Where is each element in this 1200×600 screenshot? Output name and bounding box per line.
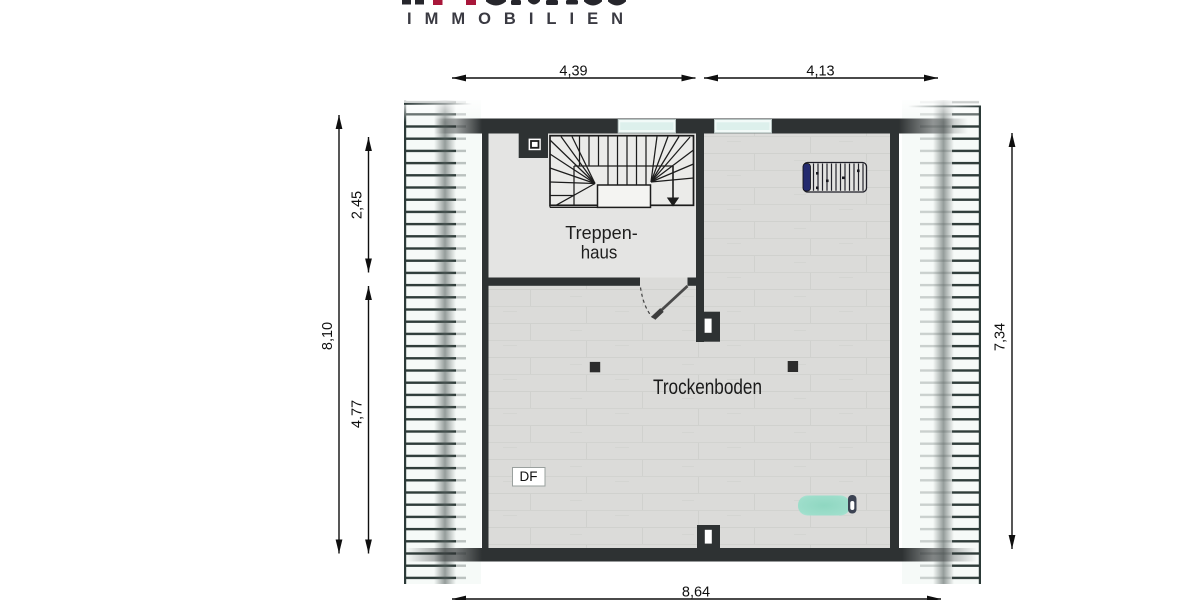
svg-text:DF: DF [520, 469, 538, 484]
svg-text:8,10: 8,10 [320, 322, 336, 350]
svg-text:2,45: 2,45 [350, 191, 366, 219]
svg-text:haus: haus [581, 242, 618, 263]
svg-text:4,13: 4,13 [806, 64, 834, 80]
svg-text:IMMOBILIEN: IMMOBILIEN [407, 10, 636, 28]
svg-text:4,77: 4,77 [350, 400, 366, 428]
svg-text:Treppen-: Treppen- [565, 222, 638, 243]
svg-text:Trockenboden: Trockenboden [653, 376, 762, 399]
svg-text:8,64: 8,64 [682, 585, 710, 600]
svg-text:4,39: 4,39 [559, 64, 587, 80]
svg-text:7,34: 7,34 [993, 323, 1009, 351]
